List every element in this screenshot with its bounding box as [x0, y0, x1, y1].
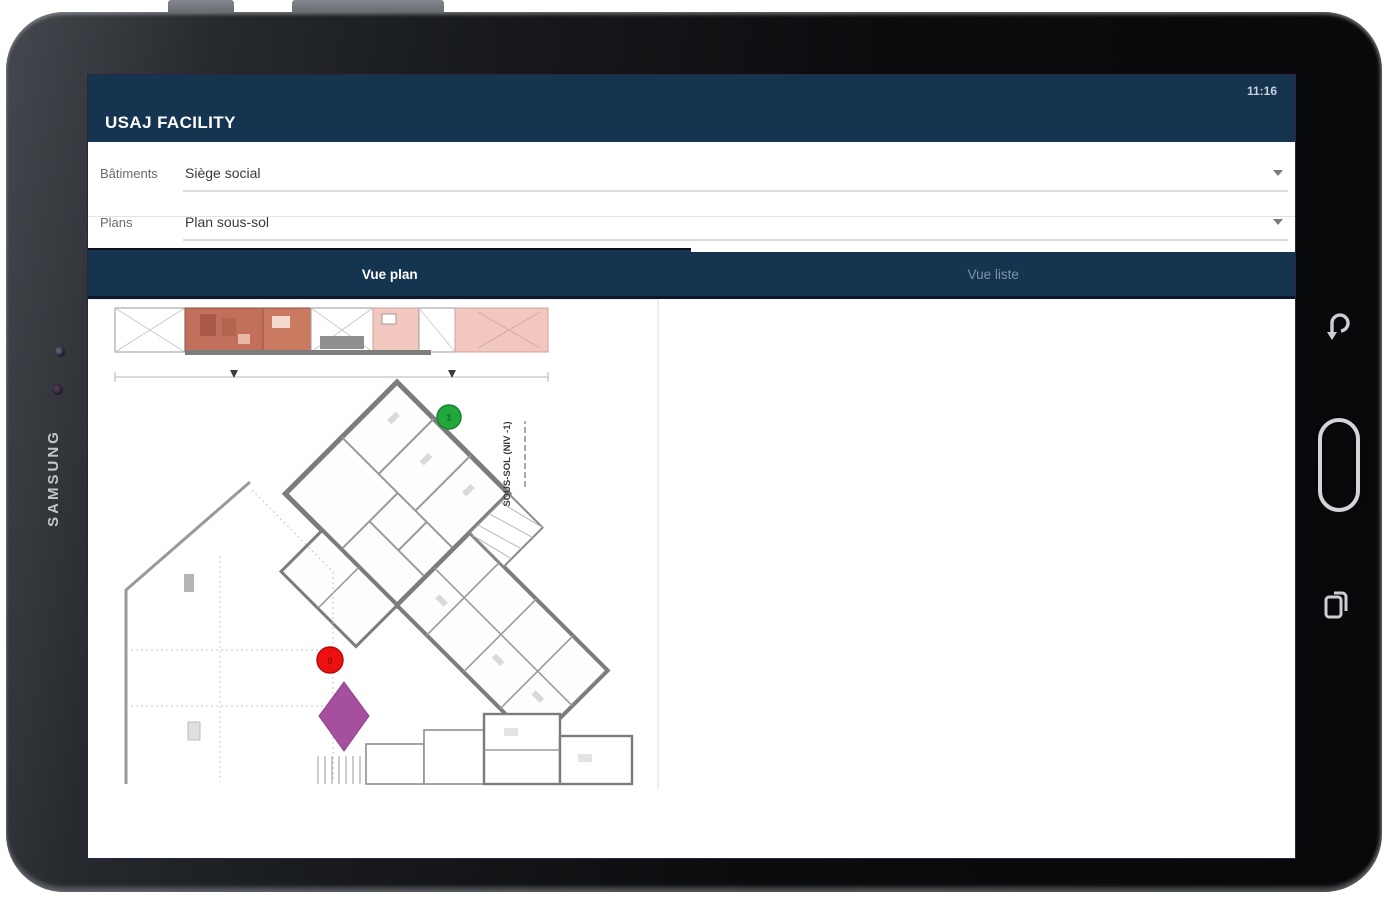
status-bar: 11:16 — [88, 75, 1295, 107]
chevron-down-icon[interactable] — [1273, 219, 1283, 225]
tablet-screen: 11:16 USAJ FACILITY Bâtiments Siège soci… — [88, 75, 1295, 858]
floor-plan-image[interactable]: SOUS-SOL (NIV -1) 1 0 — [100, 304, 635, 786]
clock: 11:16 — [1247, 84, 1277, 98]
plan-view-content: SOUS-SOL (NIV -1) 1 0 — [88, 299, 1295, 858]
home-button[interactable] — [1318, 418, 1360, 512]
light-sensor-icon — [52, 384, 63, 395]
batiments-select[interactable]: Siège social — [185, 165, 261, 181]
svg-text:1: 1 — [446, 413, 451, 423]
plans-select[interactable]: Plan sous-sol — [185, 214, 269, 230]
app-bar: USAJ FACILITY — [88, 107, 1295, 142]
plans-label: Plans — [100, 215, 133, 230]
recent-apps-button[interactable] — [1322, 587, 1354, 630]
plan-title-vertical: SOUS-SOL (NIV -1) — [502, 421, 513, 506]
svg-text:0: 0 — [327, 656, 332, 666]
plans-underline — [183, 239, 1288, 241]
page-title: USAJ FACILITY — [105, 113, 236, 133]
filters-form: Bâtiments Siège social Plans Plan sous-s… — [88, 142, 1295, 251]
batiments-underline — [183, 190, 1288, 192]
chevron-down-icon[interactable] — [1273, 170, 1283, 176]
tab-bar: Vue plan Vue liste — [88, 252, 1295, 299]
marker-red[interactable]: 0 — [317, 647, 343, 673]
marker-green[interactable]: 1 — [437, 405, 461, 429]
samsung-logo: SAMSUNG — [45, 398, 67, 558]
marker-purple-diamond[interactable] — [319, 682, 369, 751]
dimension-line — [115, 370, 548, 382]
front-camera-icon — [55, 347, 65, 357]
tablet-bezel: SAMSUNG 11:16 USAJ FACILITY Bâtiments Si… — [6, 12, 1382, 892]
tab-vue-plan[interactable]: Vue plan — [88, 252, 692, 296]
tab-vue-liste[interactable]: Vue liste — [692, 252, 1296, 296]
back-button[interactable] — [1322, 310, 1352, 349]
batiments-label: Bâtiments — [100, 166, 158, 181]
floor-plan-panel: SOUS-SOL (NIV -1) 1 0 — [88, 299, 659, 789]
